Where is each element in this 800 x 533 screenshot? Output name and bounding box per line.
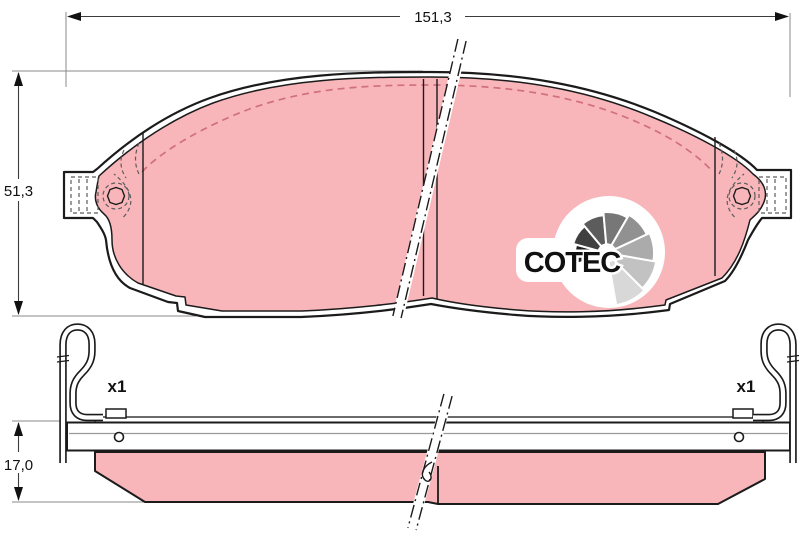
brake-pad-technical-drawing: 151,3 51,3 [0, 0, 800, 533]
arrowhead-right [775, 12, 789, 21]
height-dimension-label: 51,3 [4, 183, 33, 200]
right-boss [733, 409, 753, 418]
backing-plate-bar [67, 423, 790, 451]
right-clip-qty-label: x1 [737, 377, 756, 396]
wire-section-mark [787, 356, 799, 358]
bottom-view-pad-edge: x1 x1 [57, 327, 799, 530]
right-rivet-hole [735, 433, 744, 442]
width-dimension-label: 151,3 [414, 9, 452, 26]
top-view-pad-face: COTEC [64, 39, 791, 319]
left-clip-qty-label: x1 [108, 377, 127, 396]
arrowhead-top [14, 422, 23, 436]
arrowhead-left [67, 12, 81, 21]
left-boss [106, 409, 126, 418]
arrowhead-bottom [14, 301, 23, 315]
wire-section-mark [57, 356, 69, 358]
wire-section-mark [57, 361, 69, 363]
wire-section-mark [787, 361, 799, 363]
logo-wordmark: COTEC [524, 247, 622, 279]
arrowhead-top [14, 72, 23, 86]
arrowhead-bottom [14, 487, 23, 501]
left-rivet-hole [115, 433, 124, 442]
drawing-canvas: 151,3 51,3 [0, 0, 800, 533]
thickness-dimension-label: 17,0 [4, 457, 33, 474]
